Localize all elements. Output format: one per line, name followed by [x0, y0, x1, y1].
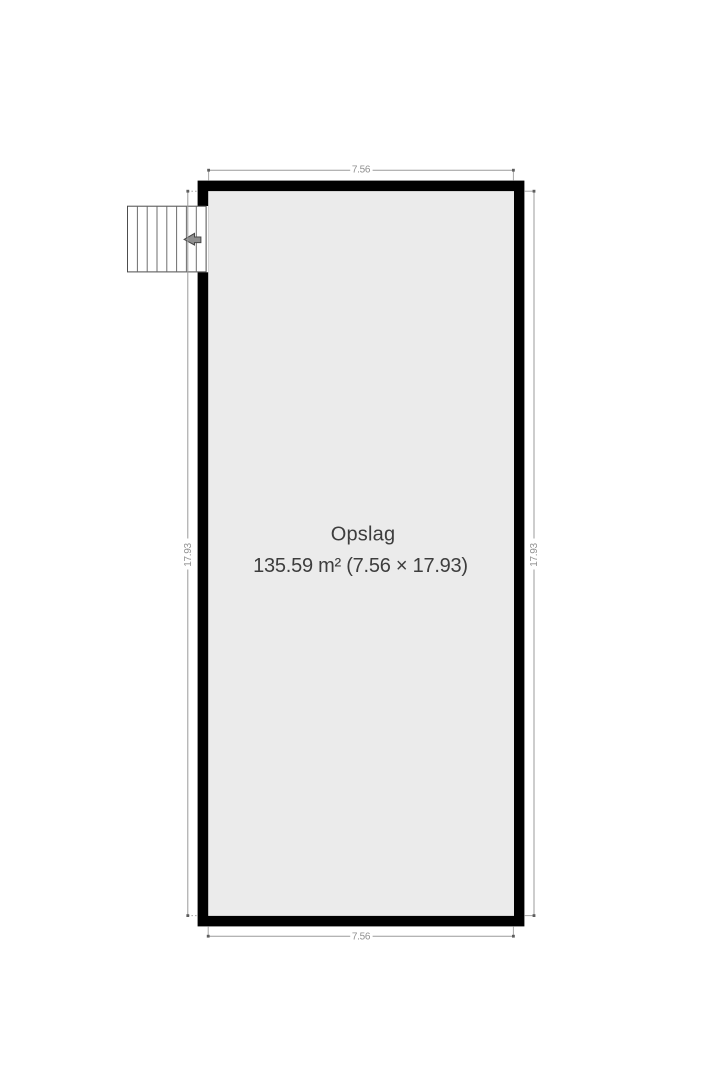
svg-text:7.56: 7.56: [352, 165, 371, 176]
svg-text:17.93: 17.93: [529, 543, 540, 567]
svg-text:7.56: 7.56: [352, 931, 371, 942]
svg-text:135.59 m² (7.56 × 17.93): 135.59 m² (7.56 × 17.93): [253, 555, 468, 577]
svg-text:Opslag: Opslag: [331, 524, 396, 546]
svg-text:17.93: 17.93: [183, 543, 194, 567]
